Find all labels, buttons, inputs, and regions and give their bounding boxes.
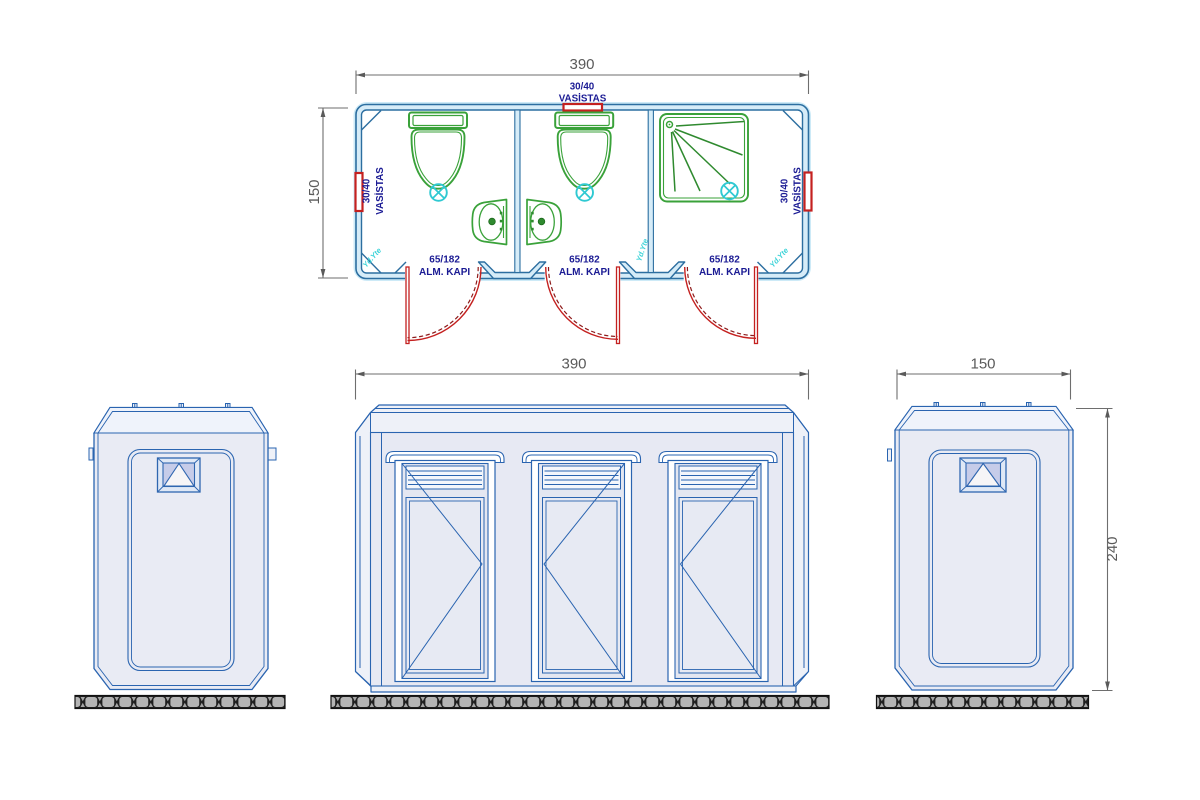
svg-text:ALM. KAPI: ALM. KAPI xyxy=(699,267,750,278)
svg-text:150: 150 xyxy=(306,179,323,204)
svg-text:Yd.Yte: Yd.Yte xyxy=(768,246,790,269)
svg-text:150: 150 xyxy=(970,356,995,373)
svg-text:390: 390 xyxy=(561,356,586,373)
svg-text:65/182: 65/182 xyxy=(709,255,740,266)
svg-text:ALM. KAPI: ALM. KAPI xyxy=(419,267,470,278)
svg-text:65/182: 65/182 xyxy=(429,255,460,266)
svg-text:VASİSTAS: VASİSTAS xyxy=(793,167,804,215)
svg-text:240: 240 xyxy=(1104,536,1121,561)
svg-text:VASİSTAS: VASİSTAS xyxy=(559,94,607,105)
svg-text:30/40: 30/40 xyxy=(780,178,791,203)
svg-text:30/40: 30/40 xyxy=(362,178,373,203)
svg-text:Yd.Yte: Yd.Yte xyxy=(361,246,383,269)
svg-text:ALM. KAPI: ALM. KAPI xyxy=(559,267,610,278)
svg-text:VASİSTAS: VASİSTAS xyxy=(375,167,386,215)
svg-text:65/182: 65/182 xyxy=(569,255,600,266)
svg-text:30/40: 30/40 xyxy=(570,82,595,93)
svg-text:390: 390 xyxy=(569,56,594,73)
